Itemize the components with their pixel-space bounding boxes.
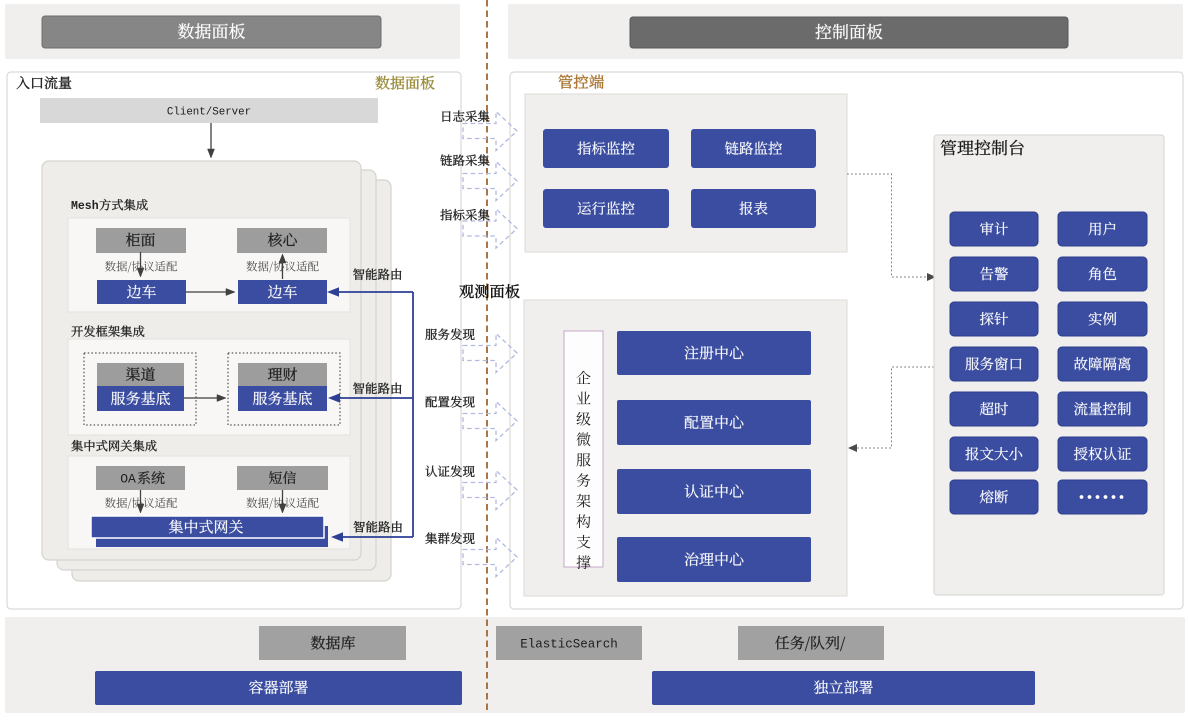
svg-text:ElasticSearch: ElasticSearch bbox=[520, 637, 618, 651]
svg-text:Client/Server: Client/Server bbox=[167, 106, 251, 118]
svg-text:OA: OA bbox=[120, 472, 136, 487]
svg-text:Mesh: Mesh bbox=[71, 200, 99, 213]
